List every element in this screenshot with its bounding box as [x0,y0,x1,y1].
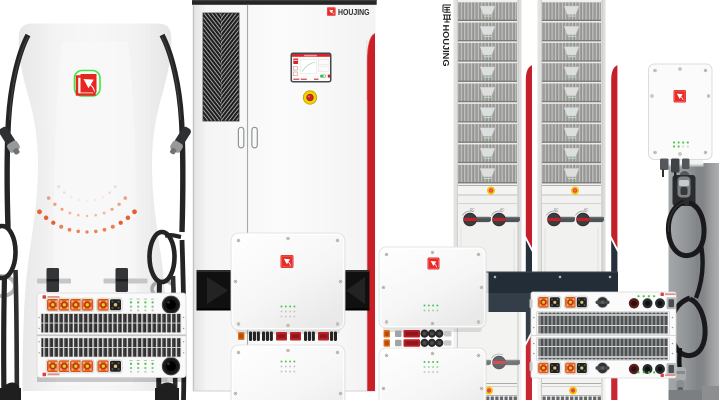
svg-text:HOUJING: HOUJING [338,8,370,17]
svg-text:HOUJING: HOUJING [441,25,451,67]
